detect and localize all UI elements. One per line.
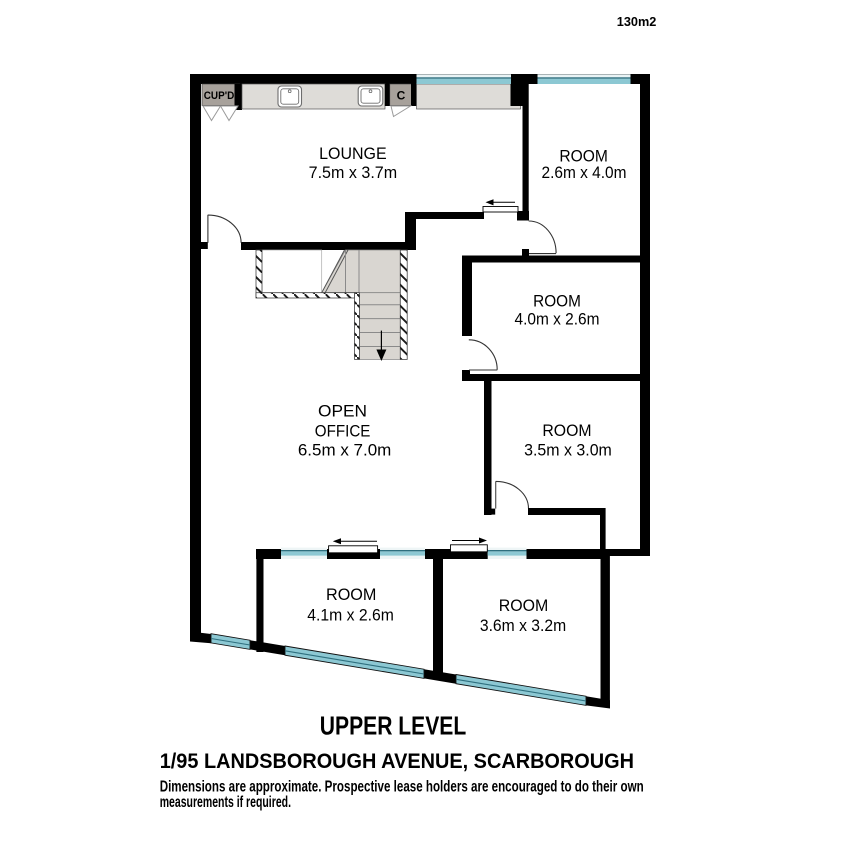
svg-text:1/95 LANDSBOROUGH AVENUE, SCAR: 1/95 LANDSBOROUGH AVENUE, SCARBOROUGH	[160, 749, 634, 773]
svg-text:OFFICE: OFFICE	[315, 422, 371, 441]
svg-text:ROOM: ROOM	[499, 596, 549, 615]
svg-text:CUP'D: CUP'D	[204, 90, 235, 102]
svg-text:ROOM: ROOM	[326, 585, 376, 604]
svg-text:7.5m x 3.7m: 7.5m x 3.7m	[309, 163, 398, 182]
svg-text:2.6m x 4.0m: 2.6m x 4.0m	[542, 163, 627, 182]
svg-text:3.6m x 3.2m: 3.6m x 3.2m	[480, 616, 566, 635]
svg-text:UPPER LEVEL: UPPER LEVEL	[320, 710, 466, 740]
svg-text:130m2: 130m2	[617, 15, 657, 29]
svg-text:3.5m x 3.0m: 3.5m x 3.0m	[524, 440, 612, 459]
svg-text:6.5m x 7.0m: 6.5m x 7.0m	[298, 440, 392, 459]
svg-text:Dimensions are approximate. Pr: Dimensions are approximate. Prospective …	[160, 779, 644, 796]
svg-text:C: C	[397, 89, 406, 103]
svg-text:ROOM: ROOM	[533, 292, 581, 311]
svg-text:measurements if required.: measurements if required.	[160, 794, 291, 811]
svg-text:4.0m x 2.6m: 4.0m x 2.6m	[515, 309, 600, 328]
svg-text:OPEN: OPEN	[318, 402, 367, 421]
svg-text:ROOM: ROOM	[542, 421, 591, 440]
svg-text:4.1m x 2.6m: 4.1m x 2.6m	[307, 606, 394, 625]
svg-text:LOUNGE: LOUNGE	[319, 144, 387, 163]
